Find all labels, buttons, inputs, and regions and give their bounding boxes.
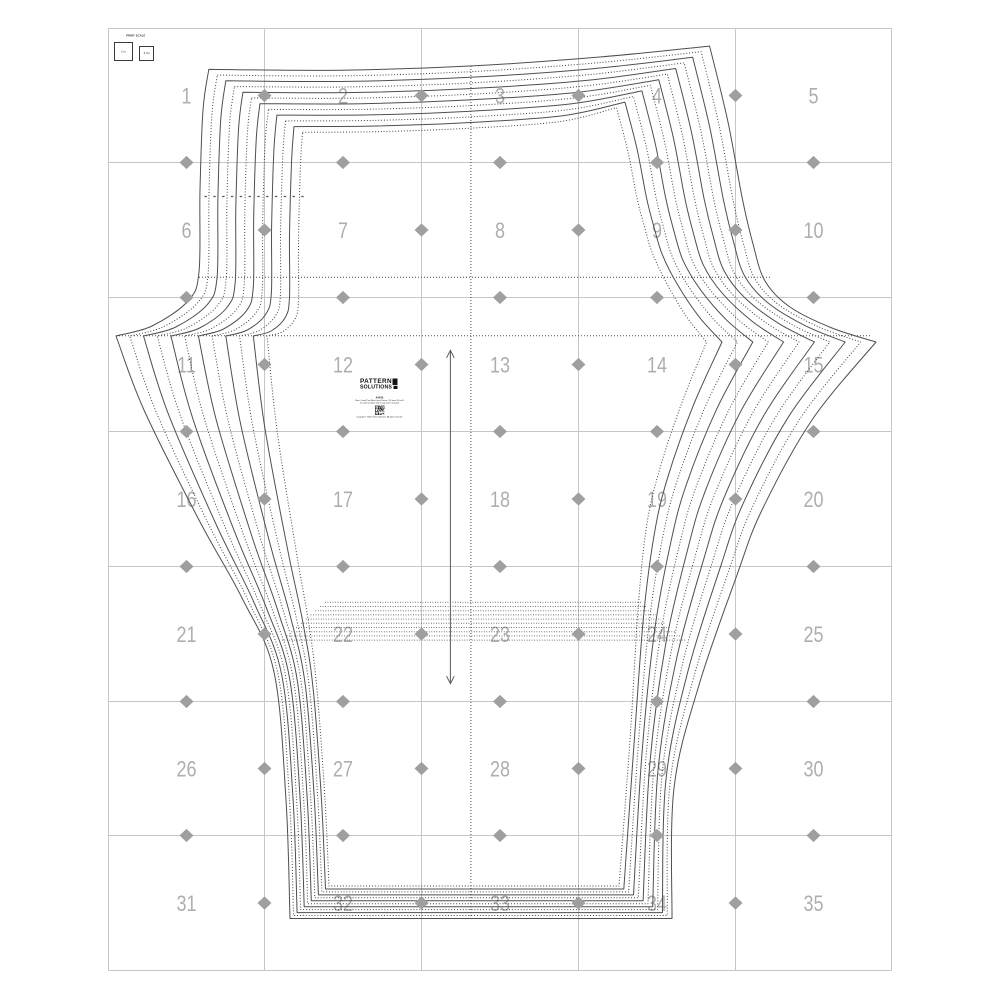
svg-text:A4245: A4245	[376, 396, 384, 400]
svg-text:6: 6	[181, 219, 191, 243]
svg-text:22: 22	[333, 623, 353, 647]
svg-text:13: 13	[490, 354, 510, 378]
svg-text:20: 20	[803, 488, 823, 512]
svg-text:28: 28	[490, 758, 510, 782]
svg-text:1: 1	[181, 85, 191, 109]
svg-text:10: 10	[803, 219, 823, 243]
svg-text:31: 31	[176, 892, 196, 916]
svg-text:27: 27	[333, 758, 353, 782]
svg-text:7: 7	[338, 219, 348, 243]
svg-text:SOLUTIONS: SOLUTIONS	[360, 385, 392, 391]
svg-text:18: 18	[490, 488, 510, 512]
svg-text:for sport knit fabric with 4-w: for sport knit fabric with 4-way stretch…	[360, 402, 399, 405]
svg-text:8: 8	[495, 219, 505, 243]
svg-text:15: 15	[803, 354, 823, 378]
svg-text:35: 35	[803, 892, 823, 916]
svg-text:5: 5	[808, 85, 818, 109]
svg-text:25: 25	[803, 623, 823, 647]
svg-text:2 cm: 2 cm	[144, 51, 151, 55]
svg-text:12: 12	[333, 354, 353, 378]
svg-text:17: 17	[333, 488, 353, 512]
svg-text:Copyright © 2020 Pattern Solut: Copyright © 2020 Pattern Solutions. All …	[356, 416, 403, 419]
svg-text:3: 3	[495, 85, 505, 109]
svg-text:2: 2	[338, 85, 348, 109]
svg-text:14: 14	[647, 354, 667, 378]
svg-text:PRINT SCALE: PRINT SCALE	[126, 33, 145, 37]
svg-text:21: 21	[176, 623, 196, 647]
svg-text:30: 30	[803, 758, 823, 782]
svg-text:4: 4	[652, 85, 662, 109]
svg-text:1 in: 1 in	[121, 50, 126, 54]
svg-text:26: 26	[176, 758, 196, 782]
